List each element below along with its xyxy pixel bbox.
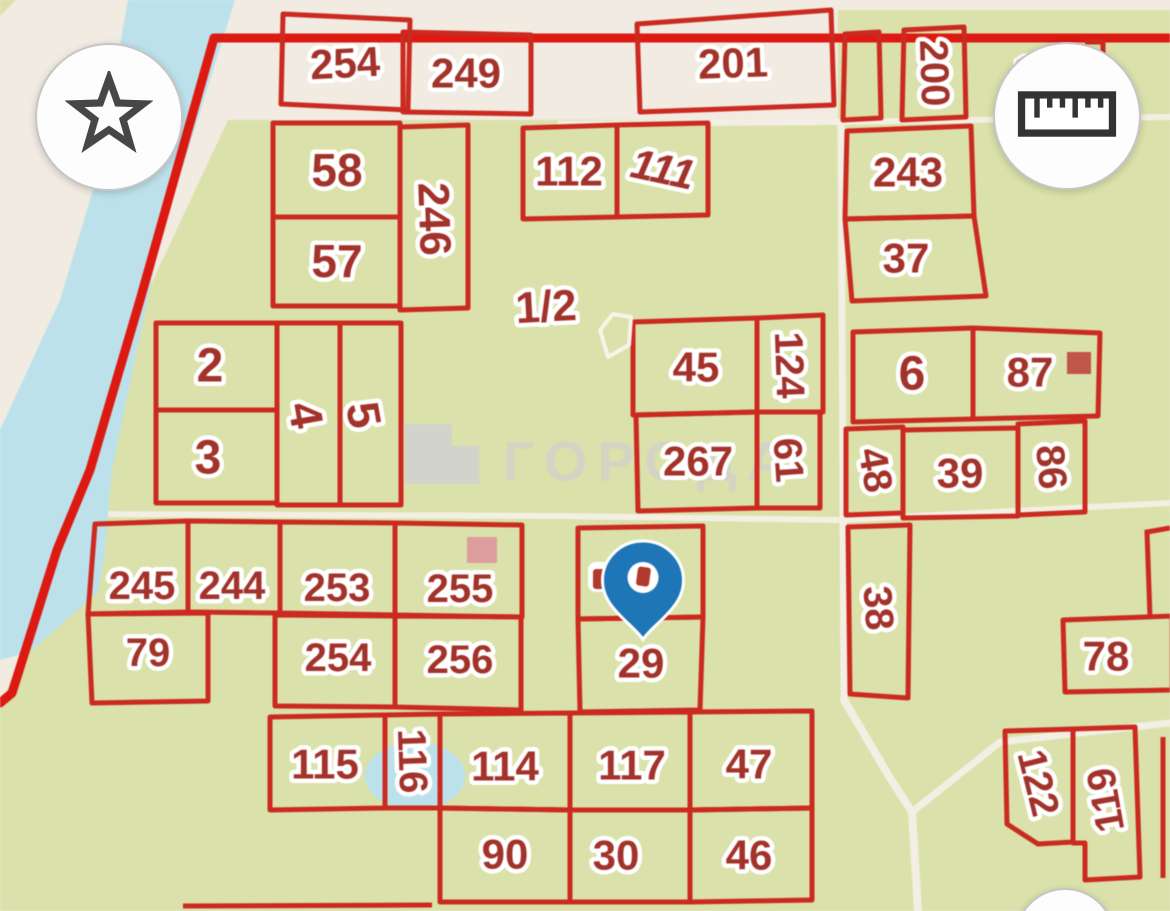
parcel-label: 86: [1027, 443, 1075, 491]
parcel-label: 48: [849, 444, 900, 495]
parcel-label: 39: [937, 450, 984, 497]
parcel-label: 57: [311, 235, 362, 287]
parcel-label: 79: [126, 631, 171, 675]
parcel-label: 87: [1007, 349, 1054, 396]
parcel-label: 253: [304, 566, 371, 610]
watermark-text: ГОРОДА: [503, 430, 797, 493]
parcel-label: 249: [431, 50, 501, 97]
measure-button[interactable]: [993, 42, 1141, 190]
parcel-label: 2: [197, 340, 224, 393]
parcel-label: 116: [389, 728, 435, 794]
parkland-wedge: [0, 0, 16, 16]
parcel-label: 245: [109, 564, 176, 608]
parcel-label: 117: [598, 742, 666, 789]
favorites-button[interactable]: [35, 43, 183, 191]
building-square-0: [1067, 352, 1091, 374]
parcel-label: 201: [697, 38, 769, 87]
ruler-icon: [1017, 88, 1117, 145]
parcel-label: 243: [873, 149, 943, 196]
parcel-label: 45: [673, 344, 720, 391]
label-fragment: [636, 566, 652, 587]
parcel-label: 124: [766, 331, 812, 400]
parcel-label: 244: [199, 564, 266, 608]
parcel-fragment-3: [183, 905, 432, 906]
star-icon: [65, 71, 153, 164]
area-label: 1/2: [514, 281, 578, 333]
parcel-254[interactable]: 254: [281, 14, 410, 110]
parcel-label: 254: [309, 38, 382, 89]
parcel-label: 114: [471, 743, 539, 790]
watermark-logo: [452, 446, 479, 484]
watermark-logo: [405, 424, 452, 484]
parcel-label: 38: [855, 584, 902, 631]
parcel-label: 58: [311, 144, 362, 196]
parcel-label: 46: [726, 832, 773, 879]
parcel-label: 6: [899, 348, 926, 401]
parcel-label: 61: [765, 436, 812, 483]
parcel-label: 37: [883, 235, 930, 282]
parcel-label: 3: [195, 432, 222, 485]
parcel-label: 30: [593, 832, 640, 879]
parcel-label: 256: [427, 638, 494, 682]
parcel-label: 29: [618, 640, 665, 687]
parcel-249[interactable]: 249: [403, 32, 531, 114]
building-square-1: [467, 537, 497, 563]
parcel-label: 112: [535, 148, 603, 195]
parcel-label: 90: [482, 831, 529, 878]
parcel-201[interactable]: 201: [637, 10, 834, 112]
parcel-label: 246: [408, 181, 460, 256]
parcel-label: 115: [291, 741, 359, 788]
parcel-label: 47: [726, 741, 773, 788]
parcel-label: 78: [1083, 633, 1130, 680]
parcel-label: 254: [305, 636, 372, 680]
parcel-label: 255: [427, 567, 494, 611]
parcel-label: 200: [911, 39, 957, 107]
parcel-label: 267: [663, 438, 733, 485]
map-canvas[interactable]: ГОРОДА1082542492012002433758246571121112…: [0, 0, 1170, 911]
